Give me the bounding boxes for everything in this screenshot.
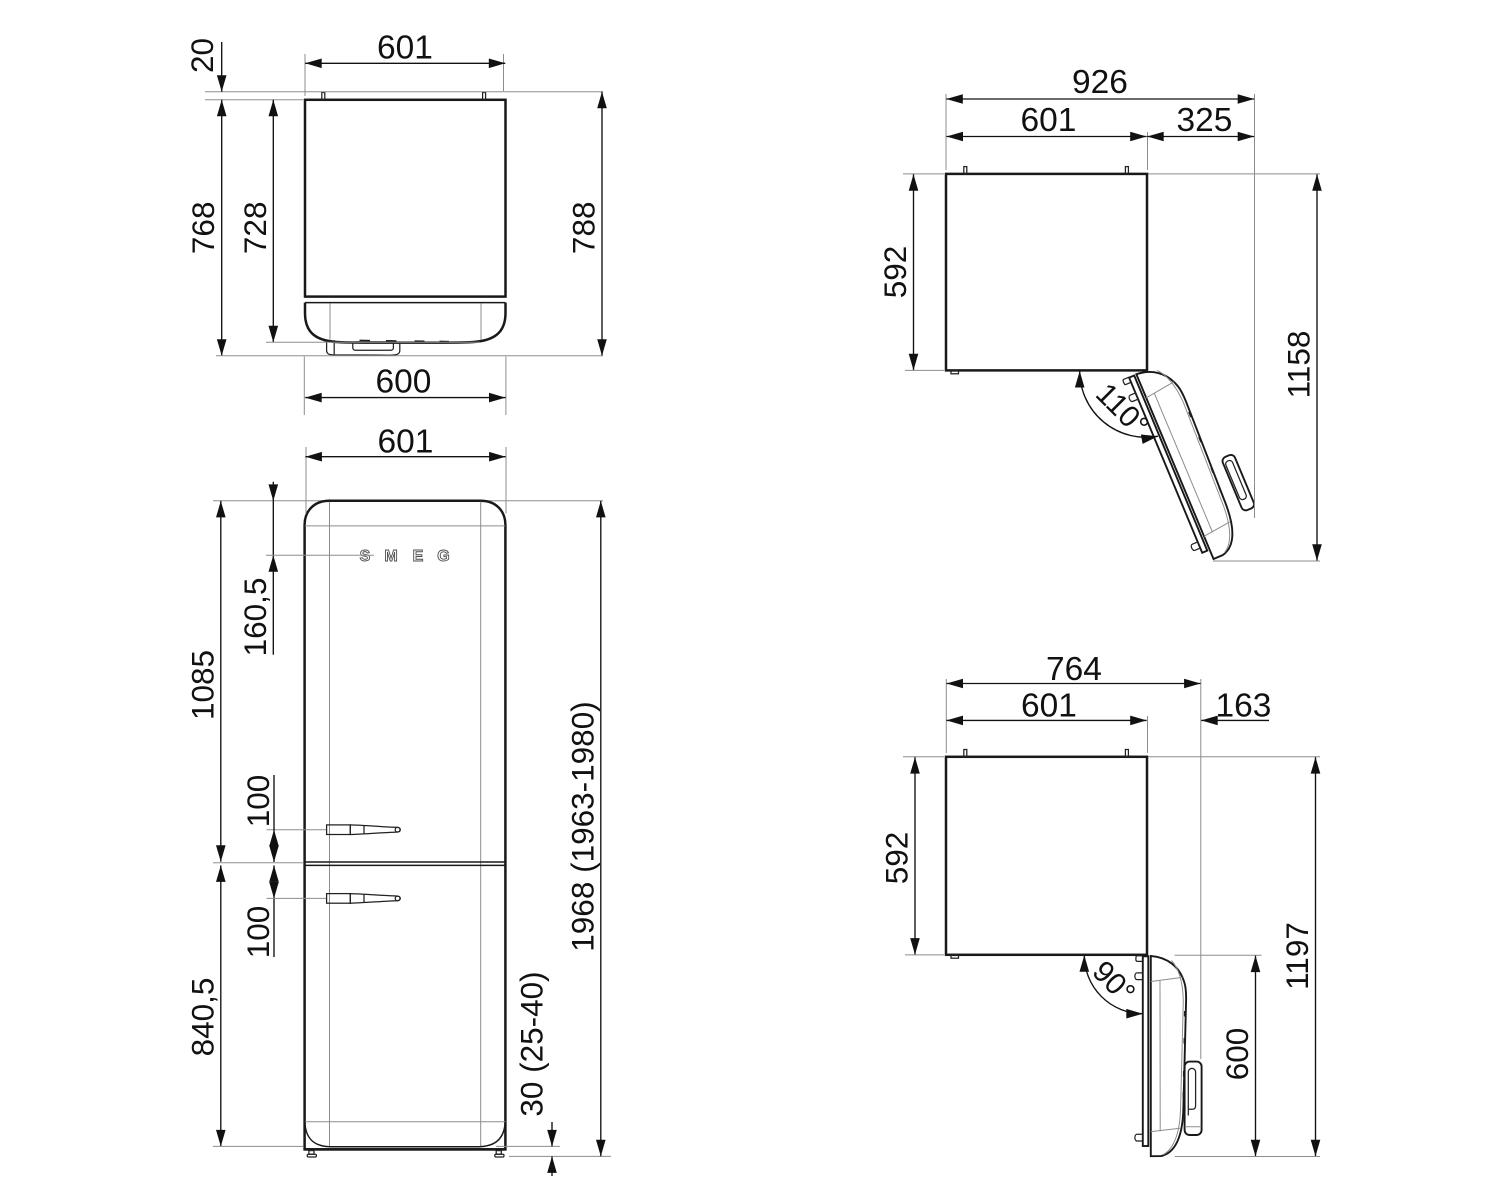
svg-text:728: 728 [237, 202, 273, 255]
svg-text:1968 (1963-1980): 1968 (1963-1980) [564, 701, 600, 951]
svg-text:764: 764 [1046, 651, 1102, 688]
svg-text:601: 601 [377, 30, 433, 67]
svg-text:1197: 1197 [1279, 922, 1315, 990]
svg-text:163: 163 [1216, 688, 1272, 725]
svg-text:20: 20 [184, 38, 220, 73]
svg-text:926: 926 [1072, 64, 1128, 101]
svg-text:840,5: 840,5 [184, 978, 220, 1057]
svg-text:601: 601 [378, 424, 434, 461]
svg-text:G: G [437, 548, 449, 565]
svg-text:100: 100 [240, 906, 276, 959]
svg-text:600: 600 [1219, 1028, 1255, 1081]
svg-text:601: 601 [1021, 102, 1077, 139]
svg-text:160,5: 160,5 [237, 578, 273, 657]
svg-text:601: 601 [1021, 688, 1077, 725]
svg-text:100: 100 [240, 775, 276, 828]
svg-text:M: M [384, 548, 397, 565]
svg-text:592: 592 [879, 832, 915, 885]
svg-text:1158: 1158 [1281, 331, 1317, 399]
svg-text:E: E [413, 548, 424, 565]
svg-text:325: 325 [1177, 102, 1233, 139]
svg-text:600: 600 [376, 363, 432, 400]
svg-text:1085: 1085 [184, 650, 220, 720]
svg-text:788: 788 [566, 202, 602, 255]
svg-text:S: S [360, 548, 371, 565]
svg-text:30 (25-40): 30 (25-40) [514, 971, 550, 1116]
svg-text:768: 768 [185, 202, 221, 255]
svg-text:592: 592 [877, 246, 913, 299]
